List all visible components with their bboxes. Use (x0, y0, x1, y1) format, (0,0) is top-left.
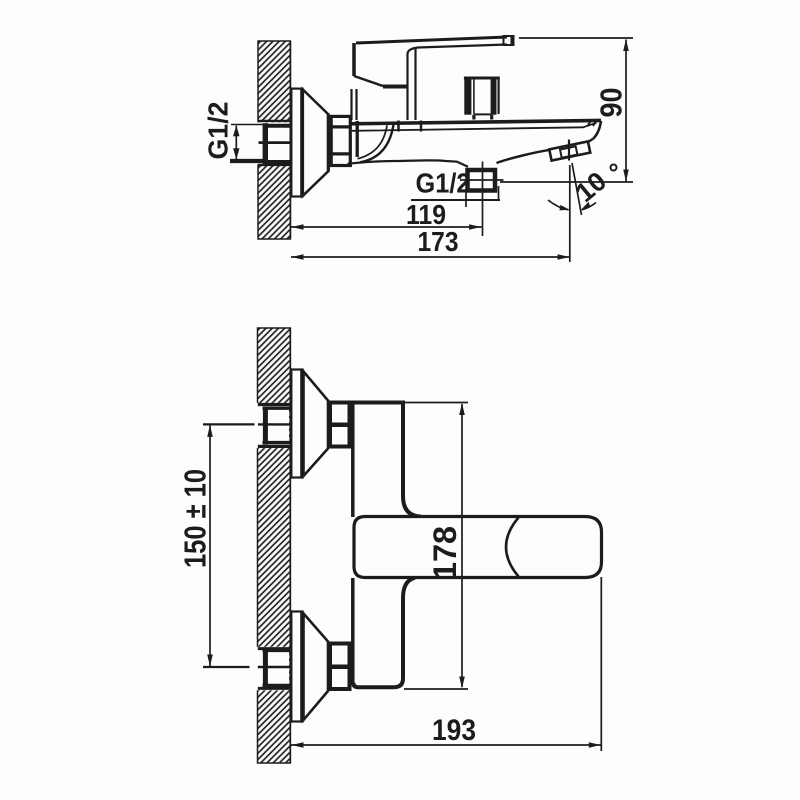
svg-text:173: 173 (418, 226, 459, 257)
svg-text:178: 178 (427, 526, 463, 580)
svg-text:G1/2: G1/2 (416, 168, 471, 199)
svg-text:G1/2: G1/2 (203, 102, 234, 160)
svg-text:150 ± 10: 150 ± 10 (178, 469, 213, 568)
svg-text:90: 90 (594, 88, 629, 118)
svg-text:193: 193 (432, 714, 476, 747)
